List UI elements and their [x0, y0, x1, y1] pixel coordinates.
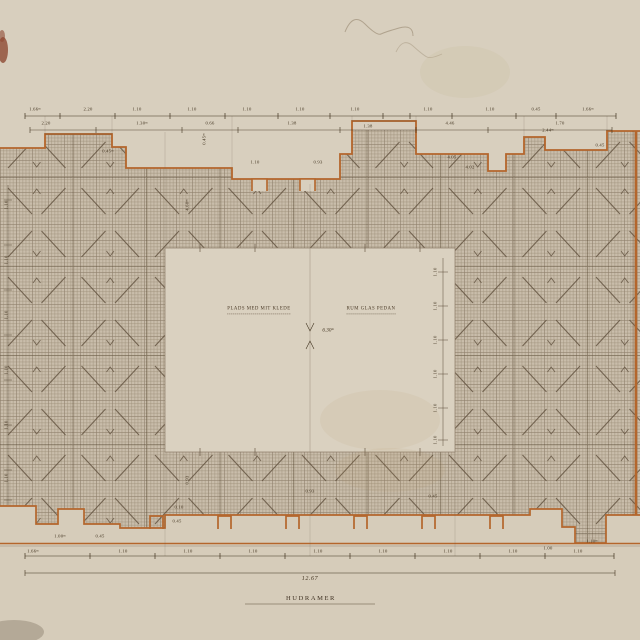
- overall-dimension-label: 12.67: [302, 576, 319, 582]
- drawing-sheet: 1.66ᵐ2.201.101.101.101.101.101.101.100.4…: [0, 0, 640, 640]
- drawing-linework: [0, 0, 640, 640]
- central-opening: [165, 244, 455, 456]
- room-label-left: PLADS MED MIT KLEDE: [227, 307, 290, 314]
- center-dimension-label: 6.30ᵐ: [322, 328, 333, 333]
- scanned-architectural-plan: { "drawing": { "title": "HUDRAMER", "ove…: [0, 0, 640, 640]
- drawing-title: HUDRAMER: [286, 596, 336, 603]
- room-label-right: RUM GLAS PEDAN: [347, 307, 396, 314]
